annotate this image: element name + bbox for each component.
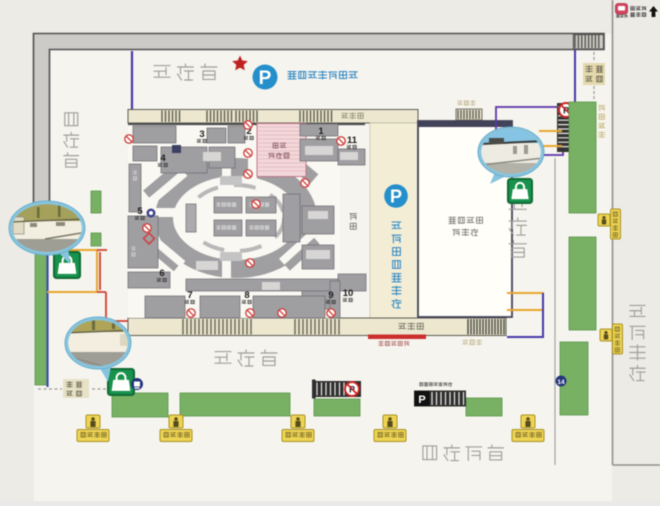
svg-text:5: 5 <box>137 206 143 217</box>
svg-text:9: 9 <box>328 290 333 301</box>
svg-text:7: 7 <box>187 290 192 301</box>
svg-text:P: P <box>418 394 425 406</box>
svg-text:P: P <box>259 68 272 89</box>
svg-text:11: 11 <box>347 135 358 146</box>
svg-text:1: 1 <box>318 126 324 137</box>
svg-text:8: 8 <box>244 290 249 301</box>
svg-text:3: 3 <box>199 129 204 140</box>
svg-text:P: P <box>390 187 402 207</box>
svg-text:10: 10 <box>343 288 354 299</box>
svg-text:4: 4 <box>160 153 166 164</box>
svg-text:6: 6 <box>159 268 164 279</box>
svg-text:14: 14 <box>557 379 565 386</box>
